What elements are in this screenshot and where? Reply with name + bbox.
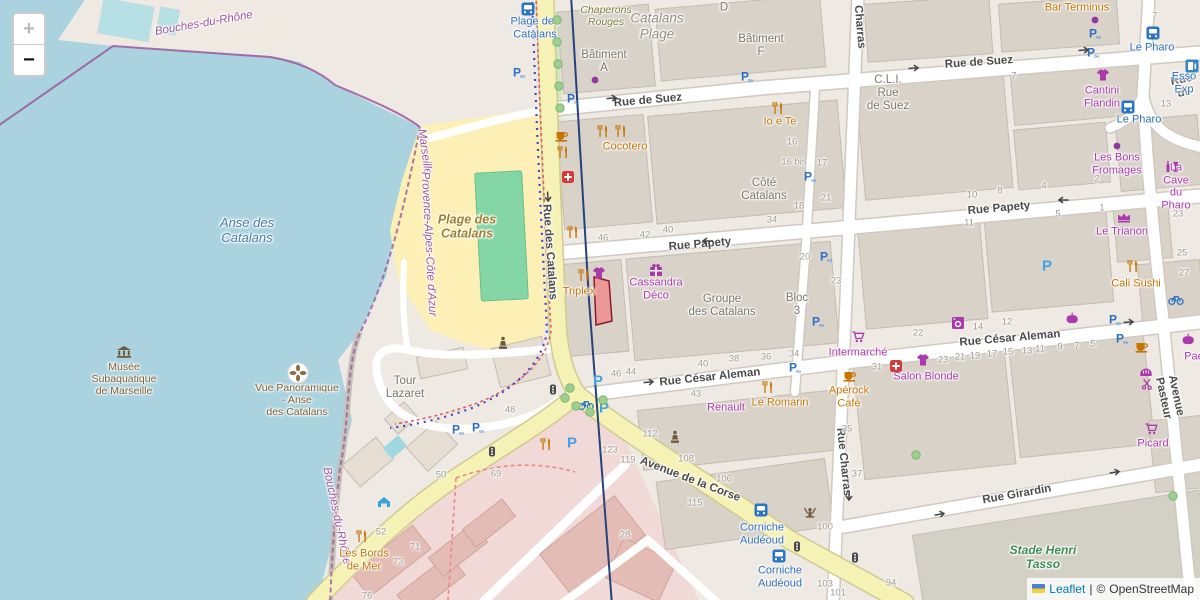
zoom-out-button[interactable]: − — [14, 45, 44, 75]
highlighted-building[interactable] — [594, 277, 612, 325]
zoom-in-button[interactable]: + — [14, 14, 44, 45]
zoom-control: + − — [12, 12, 46, 77]
openstreetmap-link[interactable]: OpenStreetMap — [1109, 582, 1194, 596]
attribution-bar: Leaflet | © OpenStreetMap — [1027, 578, 1200, 600]
map-tiles — [0, 0, 1200, 600]
map-canvas[interactable]: + − Leaflet | © OpenStreetMap Rue de Sue… — [0, 0, 1200, 600]
attribution-separator: | — [1089, 582, 1092, 596]
leaflet-link[interactable]: Leaflet — [1049, 582, 1085, 596]
attribution-copyright: © — [1096, 582, 1105, 596]
sports-pitch — [475, 171, 529, 301]
ukraine-flag-icon — [1032, 584, 1045, 593]
